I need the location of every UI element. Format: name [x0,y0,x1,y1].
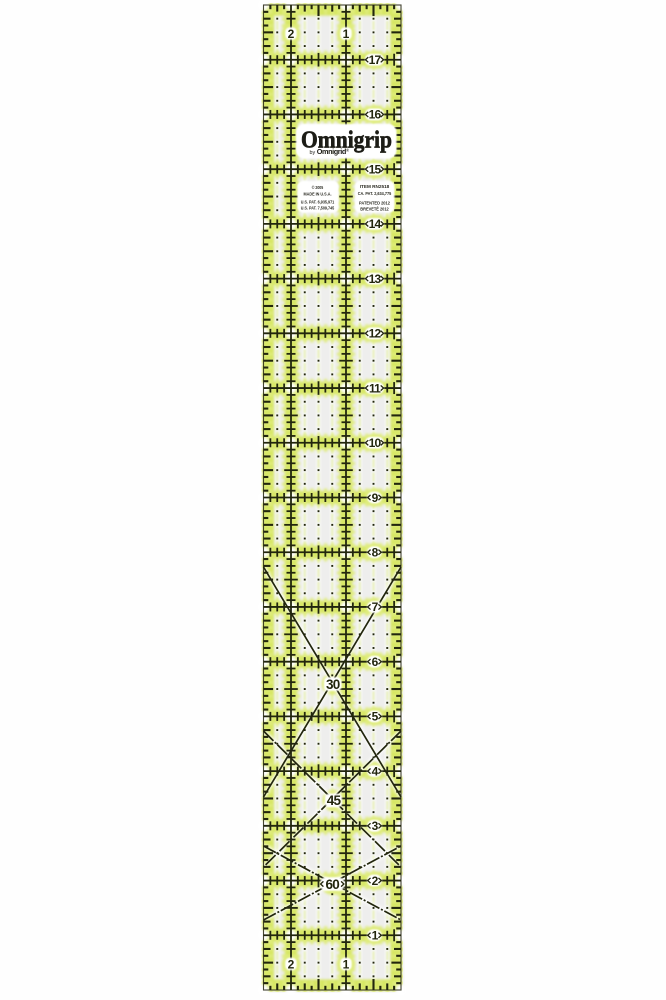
svg-text:13: 13 [369,272,382,286]
svg-text:14: 14 [369,217,382,231]
svg-text:45: 45 [327,793,342,808]
svg-text:60: 60 [325,877,339,892]
svg-text:17: 17 [369,53,382,67]
svg-text:16: 16 [369,108,382,122]
svg-text:1: 1 [343,957,350,971]
svg-text:© 2005: © 2005 [312,184,324,191]
svg-text:2: 2 [288,957,295,971]
svg-text:U.S. PAT. 6,935,971: U.S. PAT. 6,935,971 [301,200,335,206]
svg-text:12: 12 [369,327,382,341]
svg-text:10: 10 [369,436,382,450]
svg-text:30: 30 [326,677,340,692]
svg-text:PATENTED 2012: PATENTED 2012 [359,201,390,207]
svg-text:1: 1 [343,27,350,41]
svg-text:15: 15 [369,162,382,176]
svg-text:2: 2 [288,27,295,41]
svg-text:MADE IN U.S.A.: MADE IN U.S.A. [304,192,332,198]
svg-text:CA. PAT. 2,634,775: CA. PAT. 2,634,775 [358,191,392,197]
svg-text:ITEM RN2518: ITEM RN2518 [360,184,390,190]
svg-text:U.S. PAT. 7,509,745: U.S. PAT. 7,509,745 [301,206,335,212]
svg-text:11: 11 [369,381,381,395]
